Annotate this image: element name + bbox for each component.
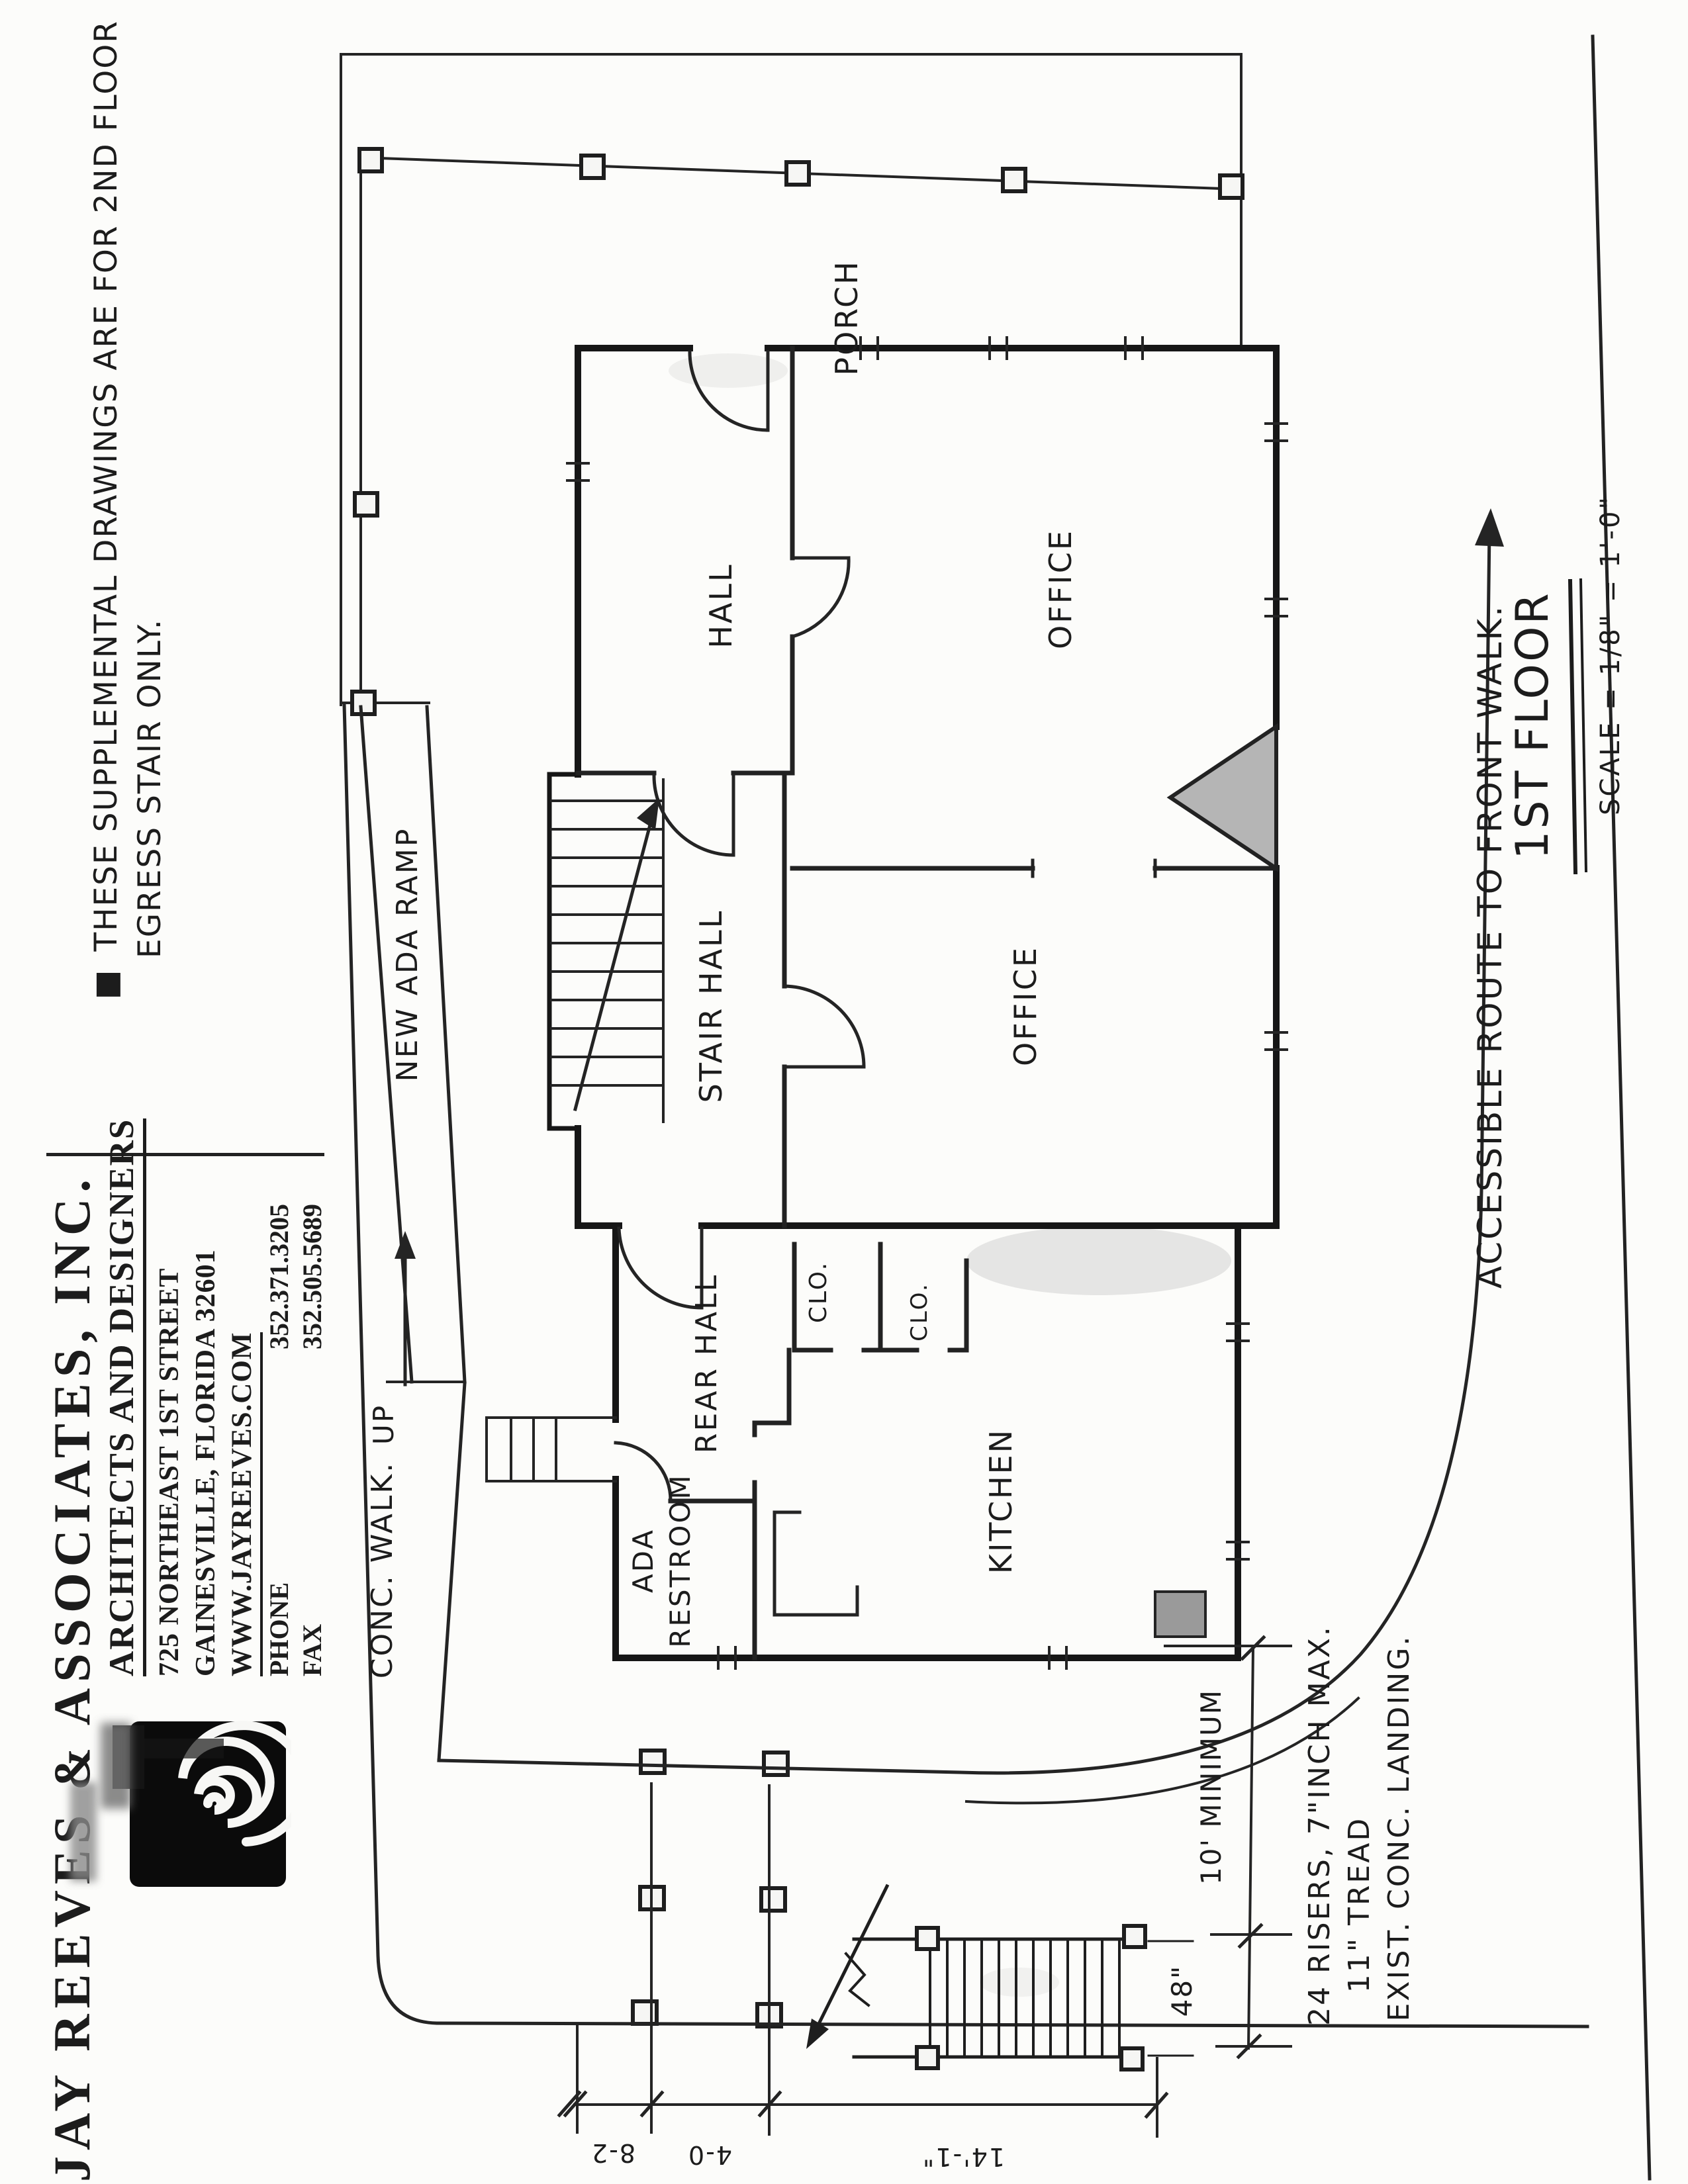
scanned-floor-plan-sheet: PORCH HALL OFFICE STAIR HALL OFFICE REAR… [0,0,1688,2184]
title-underline [1570,580,1586,872]
dim-1: 8-2 [590,2138,635,2167]
supplemental-note: ■THESE SUPPLEMENTAL DRAWINGS ARE FOR 2ND… [85,33,191,999]
firm-name: JAY REEVES & ASSOCIATES, INC. [42,1173,102,2182]
firm-tagline: ARCHITECTS AND DESIGNERS [102,1118,146,1676]
room-label-stair-hall: STAIR HALL [693,909,729,1103]
sheet-border [1593,36,1650,2179]
phone-row: PHONE 352.371.3205 [263,1204,296,1676]
fireplace [1170,727,1276,868]
up-arrow [395,1231,416,1385]
title-block-text: ARCHITECTS AND DESIGNERS 725 NORTHEAST 1… [102,1197,329,1676]
fax-number: 352.505.5689 [296,1204,329,1349]
annotation-up: UP [367,1404,400,1445]
note-line-1: ■THESE SUPPLEMENTAL DRAWINGS ARE FOR 2ND… [85,33,128,999]
note-line1-text: THESE SUPPLEMENTAL DRAWINGS ARE FOR 2ND … [88,20,124,951]
interior-walls [578,348,1276,1658]
dim-2: 4-0 [687,2140,732,2169]
scan-smudges [669,353,1231,1997]
annotation-tread: 11" TREAD [1342,1817,1376,1993]
exterior-walls [549,348,1276,1658]
dim-stair-width: 48" [1166,1965,1198,2017]
route-arrowhead [1475,508,1504,547]
dim-3: 14'-1" [921,2142,1005,2171]
annotation-risers: 24 RISERS, 7"INCH MAX. [1303,1625,1336,2026]
room-label-kitchen: KITCHEN [983,1428,1019,1574]
fax-label: FAX [296,1624,329,1676]
address-line-2: GAINESVILLE, FLORIDA 32601 [188,1197,224,1676]
room-label-office-front: OFFICE [1043,529,1078,649]
room-label-rear-hall: REAR HALL [690,1273,724,1453]
address-line-1: 725 NORTHEAST 1ST STREET [152,1197,188,1676]
room-label-porch: PORCH [829,259,865,375]
fax-row: FAX 352.505.5689 [296,1204,329,1676]
room-label-ada: ADA [627,1528,659,1593]
appliance [1155,1592,1205,1637]
logo-smudge [101,1723,131,1809]
drawing-title: 1ST FLOOR [1507,591,1559,859]
title-block: JAY REEVES & ASSOCIATES, INC. ARCHITECTS… [46,1153,324,2184]
phone-label: PHONE [263,1582,296,1676]
dimension-bottom [559,1784,1166,2136]
annotation-landing: EXIST. CONC. LANDING. [1382,1635,1416,2022]
note-line-2: EGRESS STAIR ONLY. [128,33,172,999]
room-label-closet1: CLO. [805,1261,832,1323]
egress-stair [806,1886,1193,2070]
annotation-conc-walk: CONC. WALK. [365,1461,399,1679]
website: WWW.JAYREEVES.COM [224,1332,263,1676]
spiral-logo-icon [66,1711,291,1888]
room-label-office-rear: OFFICE [1008,946,1043,1066]
room-label-closet2: CLO. [906,1282,933,1342]
annotation-ramp: NEW ADA RAMP [391,827,424,1082]
annotation-route: ACCESSIBLE ROUTE TO FRONT WALK. [1471,604,1509,1289]
phone-number: 352.371.3205 [263,1204,296,1349]
back-steps [487,1418,616,1481]
plan-labels: PORCH HALL OFFICE STAIR HALL OFFICE REAR… [365,259,1626,2171]
spiral-logo [66,1711,291,1888]
drawing-scale: SCALE = 1/8" = 1'-0" [1595,495,1626,815]
dim-min-clearance: 10' MINIMUM [1195,1689,1227,1885]
room-label-hall: HALL [703,563,739,648]
logo-smudge [70,1782,97,1882]
room-label-restroom: RESTROOM [664,1473,696,1648]
main-stair [551,780,663,1122]
window-ticks [567,338,1287,1668]
note-bullet-icon: ■ [85,969,128,999]
posts [352,149,1243,2026]
door-swings [616,352,864,1501]
